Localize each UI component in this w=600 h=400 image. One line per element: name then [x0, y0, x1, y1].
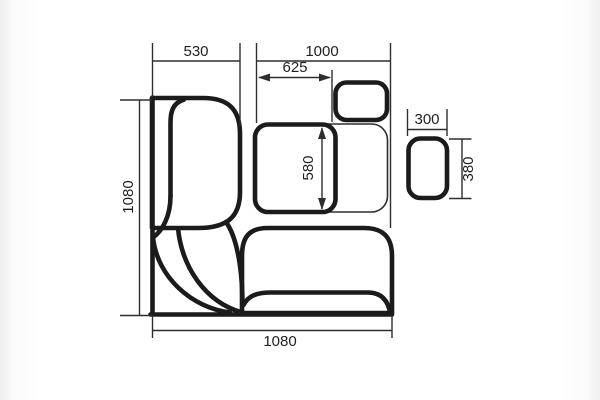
label-1080-bottom: 1080 — [263, 333, 296, 350]
drawing-canvas: 530 1000 625 580 1080 1080 300 380 — [0, 0, 600, 400]
corner-seat-front-curve — [178, 229, 242, 313]
left-bench-outline — [152, 98, 240, 228]
label-380: 380 — [460, 156, 477, 181]
furniture — [151, 83, 448, 315]
corner-bench-plan-drawing: 530 1000 625 580 1080 1080 300 380 — [0, 0, 600, 400]
label-625: 625 — [282, 59, 307, 76]
bottom-bench-outline — [242, 228, 392, 313]
label-300: 300 — [414, 111, 439, 128]
arrow-625-left — [258, 74, 270, 82]
label-580: 580 — [300, 155, 317, 180]
label-1080-left: 1080 — [120, 180, 137, 213]
label-530: 530 — [183, 43, 208, 60]
stool-small — [336, 83, 388, 121]
arrow-625-right — [319, 74, 331, 82]
stool-side — [409, 139, 448, 199]
label-1000: 1000 — [305, 43, 338, 60]
corner-seat-right-seam — [226, 222, 243, 302]
